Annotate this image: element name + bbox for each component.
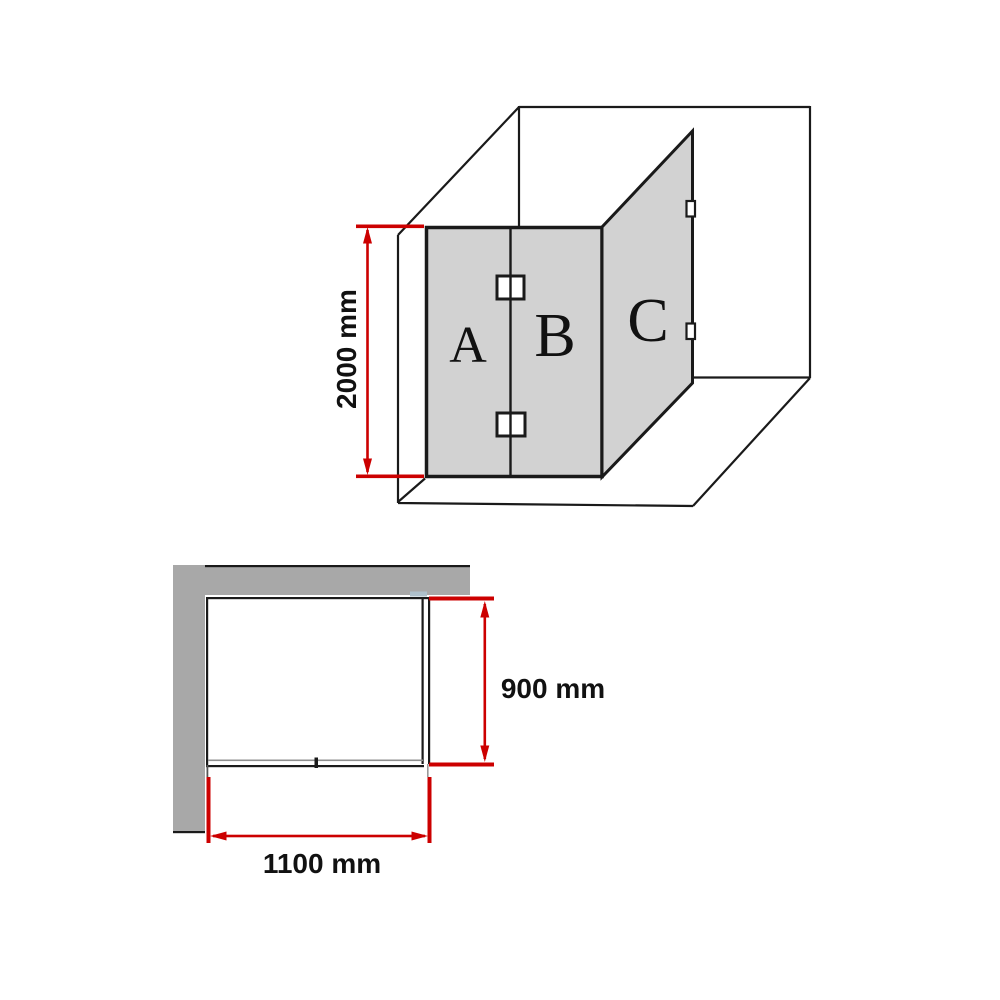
dim-line-vertical — [484, 604, 487, 759]
bracket-icon-top — [687, 201, 696, 217]
plan-panel-c-inner-line — [422, 598, 424, 764]
panel-a-label: A — [449, 317, 487, 374]
perspective-view: 2000 mm A B C — [331, 106, 810, 506]
dimension-height-2000: 2000 mm — [331, 225, 424, 479]
plan-connector-right — [427, 764, 429, 777]
dim-tick-top — [429, 597, 494, 601]
bracket-icon-bottom — [687, 324, 696, 340]
arrow-down-icon — [480, 746, 489, 763]
wall-left — [173, 565, 205, 833]
width-dimension-label: 1100 mm — [263, 848, 381, 879]
diagram-canvas: 2000 mm A B C — [0, 0, 1000, 1000]
dim-line-vertical — [366, 230, 369, 472]
depth-dimension-label: 900 mm — [501, 673, 605, 704]
wall-top-border — [173, 565, 470, 567]
dim-tick-left — [207, 777, 211, 843]
plan-top-edge — [206, 597, 429, 599]
glass-edge-highlight — [410, 592, 427, 597]
dim-tick-right — [428, 777, 432, 843]
wall-top — [173, 565, 470, 595]
dim-tick-bottom — [429, 763, 494, 767]
plan-panel-divider-tick — [315, 758, 319, 769]
dimension-depth-900: 900 mm — [429, 597, 605, 767]
dimension-width-1100: 1100 mm — [207, 777, 432, 879]
arrow-right-icon — [412, 832, 429, 841]
arrow-left-icon — [210, 832, 227, 841]
plan-view: 900 mm 1100 mm — [173, 565, 605, 879]
dim-tick-bottom — [356, 475, 424, 479]
arrow-up-icon — [480, 601, 489, 618]
panel-c-label: C — [627, 287, 668, 355]
arrow-down-icon — [363, 459, 372, 476]
panel-b-label: B — [534, 302, 575, 370]
wall-left-end-border — [173, 831, 205, 833]
dim-line-horizontal — [213, 835, 425, 838]
plan-panel-c-outer-line — [428, 598, 430, 764]
arrow-up-icon — [363, 227, 372, 244]
shower-screen-diagram: 2000 mm A B C — [0, 0, 1000, 1000]
plan-connector-left — [207, 765, 209, 778]
plan-left-edge — [206, 598, 208, 767]
height-dimension-label: 2000 mm — [331, 289, 362, 409]
dim-tick-top — [356, 225, 424, 229]
